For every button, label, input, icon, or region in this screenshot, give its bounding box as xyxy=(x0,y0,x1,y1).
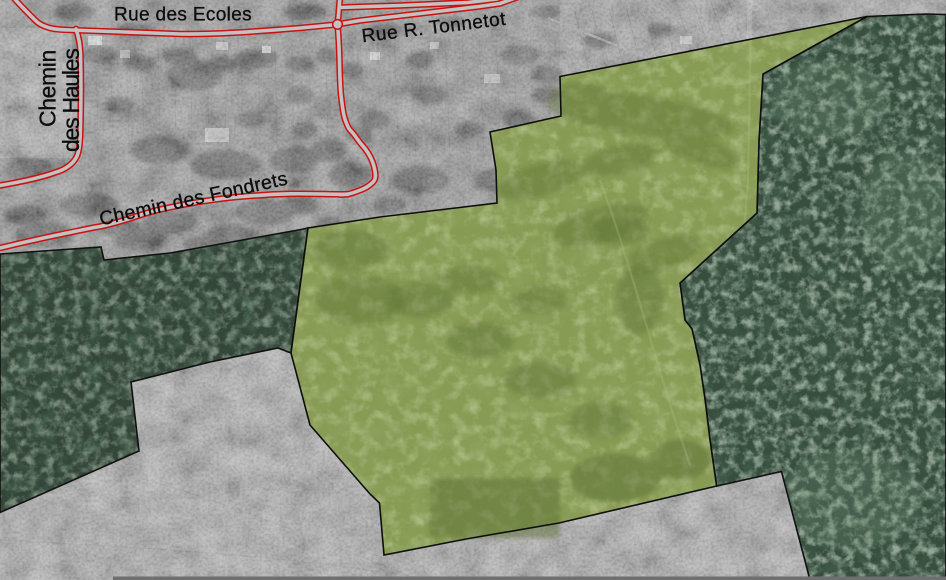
svg-text:des Haules: des Haules xyxy=(58,49,84,152)
svg-text:Rue des Ecoles: Rue des Ecoles xyxy=(114,5,252,26)
svg-text:Chemin: Chemin xyxy=(35,50,61,127)
